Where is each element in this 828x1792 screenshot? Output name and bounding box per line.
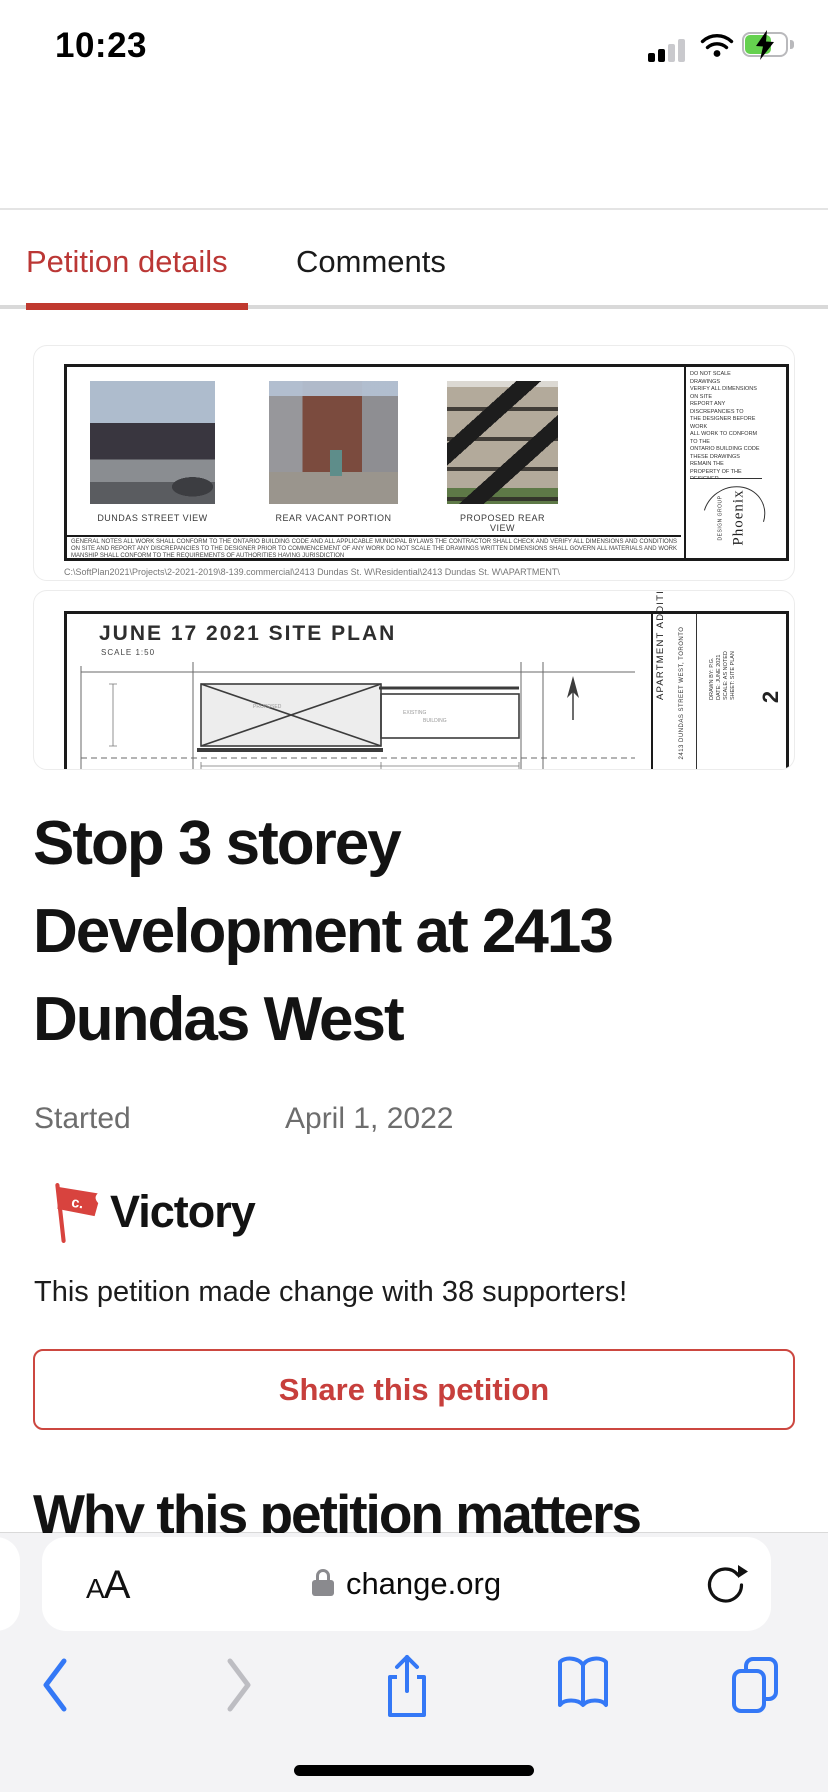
started-date: April 1, 2022 bbox=[285, 1102, 453, 1136]
adjacent-tab-peek[interactable] bbox=[0, 1537, 20, 1631]
status-time: 10:23 bbox=[55, 26, 147, 66]
supporters-text: This petition made change with 38 suppor… bbox=[34, 1276, 774, 1309]
site-plan-drawing: PROPOSEDEXISTINGBUILDING bbox=[73, 658, 643, 770]
safari-nav-row bbox=[0, 1653, 828, 1733]
sheet-number: 2 bbox=[758, 691, 784, 703]
photo-rear-vacant-portion bbox=[269, 381, 398, 504]
firm-sub: DESIGN GROUP bbox=[717, 496, 723, 541]
petition-title-line: Dundas West bbox=[33, 985, 403, 1054]
started-label: Started bbox=[34, 1102, 131, 1135]
title-block-notes: DO NOT SCALE DRAWINGS VERIFY ALL DIMENSI… bbox=[690, 371, 762, 479]
title-block: DO NOT SCALE DRAWINGS VERIFY ALL DIMENSI… bbox=[684, 367, 789, 558]
tab-bar: Petition details Comments bbox=[0, 210, 828, 311]
title-block-micro-text: DRAWN BY: P.G. DATE: JUNE 2021 SCALE: AS… bbox=[709, 630, 737, 700]
share-icon[interactable] bbox=[372, 1653, 442, 1717]
victory-row: c. Victory bbox=[48, 1182, 104, 1242]
photo-dundas-street-view bbox=[90, 381, 215, 504]
forward-icon[interactable] bbox=[202, 1653, 272, 1717]
tabs-icon[interactable] bbox=[720, 1653, 790, 1717]
sheet-fine-print: GENERAL NOTES ALL WORK SHALL CONFORM TO … bbox=[67, 535, 681, 558]
site-plan-scale: SCALE 1:50 bbox=[101, 648, 155, 657]
back-icon[interactable] bbox=[22, 1653, 92, 1717]
svg-text:PROPOSED: PROPOSED bbox=[253, 704, 282, 710]
photo-caption: REAR VACANT PORTION bbox=[269, 513, 398, 523]
battery-charging-icon bbox=[742, 32, 800, 58]
iphone-screen: 10:23 change.org Petition details Commen… bbox=[0, 0, 828, 1792]
status-bar: 10:23 bbox=[0, 0, 828, 88]
petition-title-line: Development at 2413 bbox=[33, 897, 612, 966]
site-plan-title: JUNE 17 2021 SITE PLAN bbox=[99, 622, 396, 646]
site-header: change.org bbox=[0, 88, 828, 210]
tab-comments[interactable]: Comments bbox=[296, 244, 446, 280]
share-petition-button[interactable]: Share this petition bbox=[33, 1349, 795, 1430]
photo-caption: PROPOSED REAR VIEW bbox=[447, 513, 558, 533]
svg-text:BUILDING: BUILDING bbox=[423, 718, 447, 724]
petition-title: Stop 3 storey Development at 2413 Dundas… bbox=[33, 800, 793, 1064]
url-bar[interactable]: AA change.org bbox=[42, 1537, 771, 1631]
petition-title-line: Stop 3 storey bbox=[33, 809, 400, 878]
title-block: 2413 DUNDAS STREET WEST, TORONTO APARTME… bbox=[651, 614, 790, 770]
lock-icon bbox=[312, 1569, 334, 1597]
firm-name: Phoenix bbox=[731, 463, 748, 573]
wifi-icon bbox=[700, 32, 734, 63]
reload-icon[interactable] bbox=[702, 1561, 750, 1609]
petition-image-sheet-2[interactable]: JUNE 17 2021 SITE PLAN SCALE 1:50 bbox=[33, 590, 795, 770]
phoenix-design-group-logo: Phoenix DESIGN GROUP bbox=[692, 485, 784, 553]
victory-flag-icon: c. bbox=[48, 1182, 104, 1244]
cellular-signal-icon bbox=[648, 34, 694, 64]
title-block-project: APARTMENT ADDITION bbox=[655, 590, 666, 700]
photo-caption: DUNDAS STREET VIEW bbox=[90, 513, 215, 523]
tab-petition-details[interactable]: Petition details bbox=[26, 244, 228, 280]
cad-file-path: C:\SoftPlan2021\Projects\2-2021-2019\8-1… bbox=[64, 567, 764, 577]
url-text[interactable]: change.org bbox=[346, 1566, 501, 1601]
drawing-sheet-frame: DUNDAS STREET VIEW REAR VACANT PORTION P… bbox=[64, 364, 789, 561]
svg-text:EXISTING: EXISTING bbox=[403, 710, 426, 716]
victory-label: Victory bbox=[110, 1186, 255, 1238]
petition-image-sheet-1[interactable]: DUNDAS STREET VIEW REAR VACANT PORTION P… bbox=[33, 345, 795, 581]
started-row: Started April 1, 2022 bbox=[34, 1102, 734, 1136]
bookmarks-icon[interactable] bbox=[548, 1653, 618, 1717]
title-block-address: 2413 DUNDAS STREET WEST, TORONTO bbox=[679, 618, 685, 768]
photo-proposed-rear-view bbox=[447, 381, 558, 504]
drawing-sheet-frame: JUNE 17 2021 SITE PLAN SCALE 1:50 bbox=[64, 611, 789, 770]
active-tab-underline bbox=[26, 303, 248, 310]
flag-letter: c. bbox=[70, 1195, 84, 1213]
home-indicator[interactable] bbox=[294, 1765, 534, 1776]
url-text-wrap[interactable]: change.org bbox=[42, 1537, 771, 1631]
safari-toolbar: AA change.org bbox=[0, 1533, 828, 1792]
